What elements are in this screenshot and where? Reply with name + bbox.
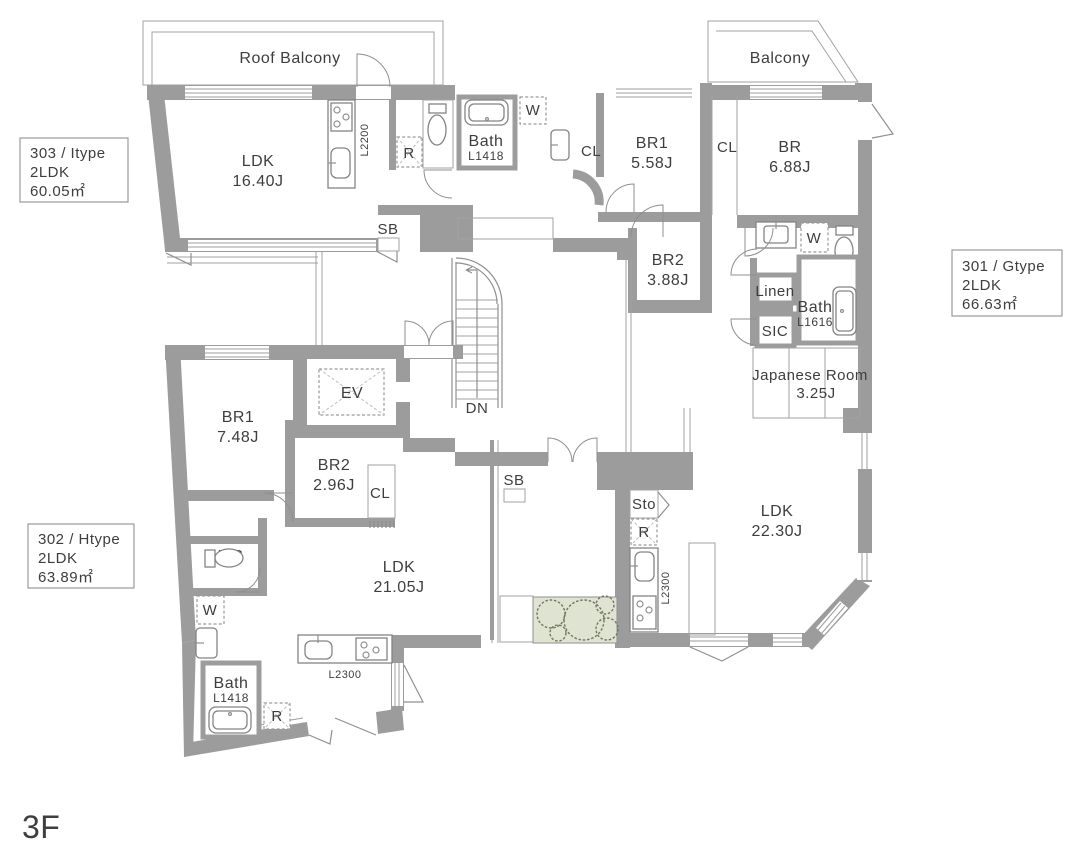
u303-br2-size: 3.88J	[647, 272, 689, 289]
u301-area: 66.63㎡	[962, 296, 1018, 313]
u301-sic-label: SIC	[762, 323, 789, 340]
u302-br1-size: 7.48J	[217, 429, 259, 446]
unit-303-walls	[147, 54, 712, 348]
u301-shoebox-label: SB	[503, 472, 524, 489]
u302-kitchen-length: L2300	[328, 669, 361, 681]
u303-ldk-label: LDK	[242, 153, 275, 170]
u303-bath-size: L1418	[468, 149, 504, 163]
balcony: Balcony	[708, 21, 858, 82]
u302-bath-size: L1418	[213, 691, 249, 705]
u303-br1-size: 5.58J	[631, 155, 673, 172]
u302-bath-label: Bath	[214, 675, 249, 692]
u301-ldk-size: 22.30J	[751, 523, 802, 540]
stairs-down-label: DN	[466, 400, 489, 417]
u303-layout: 2LDK	[30, 164, 70, 181]
u302-fridge-label: R	[271, 708, 282, 725]
u303-ldk-size: 16.40J	[232, 173, 283, 190]
u303-area: 60.05㎡	[30, 183, 86, 200]
core-elevator: EV	[293, 321, 548, 466]
u302-layout: 2LDK	[38, 550, 78, 567]
roof-balcony: Roof Balcony	[143, 21, 443, 85]
u303-fridge-label: R	[403, 145, 414, 162]
roof-balcony-label: Roof Balcony	[239, 50, 340, 67]
unit-301-interior: CL BR 6.88J W Linen SIC Bath L1616 Japan…	[492, 95, 868, 643]
u303-closet-label: CL	[581, 143, 601, 160]
u301-layout: 2LDK	[962, 277, 1002, 294]
core-stairs: DN	[452, 258, 502, 417]
u302-washer-label: W	[203, 602, 218, 619]
u303-kitchen-length: L2200	[359, 123, 371, 156]
u303-shoebox-label: SB	[377, 221, 398, 238]
unit-302-interior: BR1 7.48J BR2 2.96J CL WIC W Bath L1418 …	[196, 409, 425, 737]
elevator-label: EV	[341, 385, 363, 402]
u301-bath-size: L1616	[797, 315, 833, 329]
u301-br-size: 6.88J	[769, 159, 811, 176]
floor-plan-page: Roof Balcony Balcony	[0, 0, 1068, 848]
unit-301-infobox: 301 / Gtype 2LDK 66.63㎡	[952, 250, 1062, 316]
u301-br-label: BR	[778, 139, 801, 156]
u302-name: 302 / Htype	[38, 531, 120, 548]
u302-br2-label: BR2	[318, 457, 351, 474]
u301-linen-label: Linen	[755, 283, 794, 300]
u303-br2-label: BR2	[652, 252, 685, 269]
floor-label: 3F	[22, 809, 60, 845]
u301-closet-label: CL	[717, 139, 737, 156]
u302-ldk-label: LDK	[383, 559, 416, 576]
floor-plan-drawing: Roof Balcony Balcony	[0, 0, 1068, 848]
u303-br1-label: BR1	[636, 135, 669, 152]
entrance-planter	[533, 596, 618, 643]
u302-area: 63.89㎡	[38, 569, 94, 586]
u301-kitchen-length: L2300	[660, 571, 672, 604]
u301-jroom-size: 3.25J	[796, 385, 835, 402]
u302-br1-label: BR1	[222, 409, 255, 426]
u303-name: 303 / Itype	[30, 145, 106, 162]
unit-303-interior: LDK 16.40J L2200 R Bath L1418 W CL BR1	[232, 97, 688, 289]
balcony-label: Balcony	[750, 50, 810, 67]
u301-name: 301 / Gtype	[962, 258, 1045, 275]
u301-fridge-label: R	[638, 524, 649, 541]
u303-bath-label: Bath	[469, 133, 504, 150]
u302-closet-label: CL	[370, 485, 390, 502]
u301-storage-label: Sto	[632, 496, 656, 513]
u302-ldk-size: 21.05J	[373, 579, 424, 596]
u301-bath-label: Bath	[798, 299, 833, 316]
unit-302-infobox: 302 / Htype 2LDK 63.89㎡	[28, 524, 134, 588]
u301-washer-label: W	[807, 230, 822, 247]
u303-washer-label: W	[526, 102, 541, 119]
u301-jroom-label: Japanese Room	[752, 367, 868, 384]
unit-303-infobox: 303 / Itype 2LDK 60.05㎡	[20, 138, 128, 202]
u301-ldk-label: LDK	[761, 503, 794, 520]
u302-br2-size: 2.96J	[313, 477, 355, 494]
